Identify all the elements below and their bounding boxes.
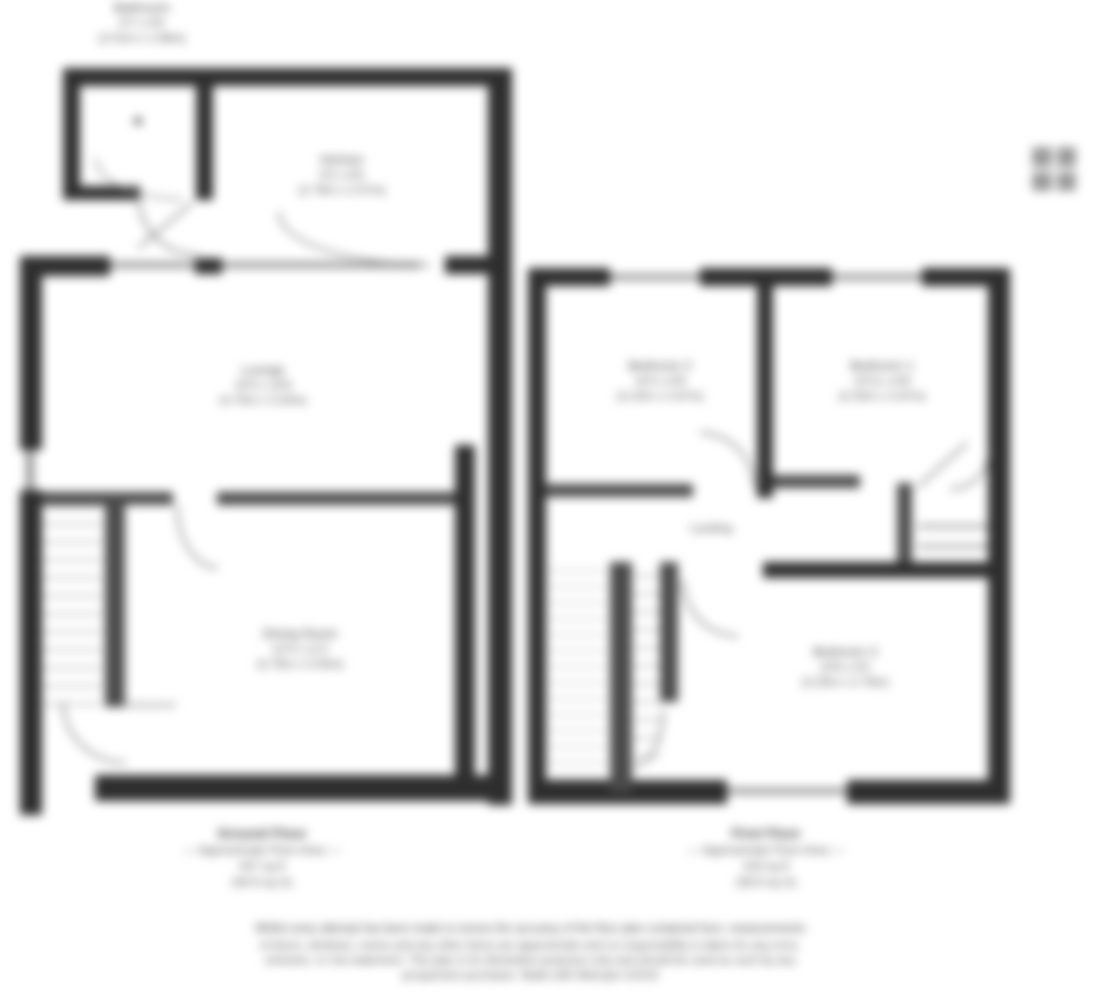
wall [546,484,693,497]
room-dims: 10'2 x 8'9 [616,374,703,389]
wall [217,492,455,505]
floor-area-line: — Approximate Floor Area — [184,842,340,858]
cupboard-wall [897,483,912,568]
disclaimer-line: prospective purchaser. Made with Metropi… [402,969,658,984]
room-label-kitchen: Kitchen 9'2 x 8'5 (2.79m x 2.57m) [298,152,385,198]
stair-wall [105,500,125,707]
room-dims: (3.20m x 2.79m) [801,675,888,690]
door-arc [950,452,990,490]
room-name: Lounge [219,362,306,378]
first-floor-caption: First Floor — Approximate Floor Area — 4… [688,824,844,890]
staircase [548,570,606,780]
cupboard-shelf [918,545,988,548]
door-leaf [118,704,176,706]
wall [528,268,546,804]
window [610,274,700,280]
door-arc [278,212,430,266]
door-arc [62,702,126,764]
chimney-wall [455,445,475,780]
room-dims: 6'7 x 5'6 [98,16,185,31]
floor-area-line: (40.6 sq m) [184,874,340,890]
room-dims: (3.33m x 2.67m) [838,389,925,404]
stair-wall [610,562,632,792]
wall [196,82,213,200]
room-dims: (3.76m x 3.40m) [256,657,343,672]
room-label-dining-room: Dining Room 12'4 x 11'2 (3.76m x 3.40m) [256,626,343,672]
room-label-landing: Landing [690,521,733,536]
wall [773,475,860,488]
floor-plan-page: Bathroom 6'7 x 5'6 (2.01m x 1.68m) Kitch… [0,0,1120,1008]
wall [95,775,490,801]
room-dims: 10'11 x 8'9 [838,374,925,389]
floor-area-line: 437 sq ft [184,858,340,874]
floor-title: First Floor [688,824,844,842]
room-name: Bedroom 1 [838,358,925,374]
staircase [44,505,102,705]
logo-tile [1032,147,1052,167]
wall [20,490,42,815]
floor-area-line: 419 sq ft [688,858,844,874]
room-label-bedroom-3: Bedroom 3 10'6 x 9'2 (3.20m x 2.79m) [801,644,888,690]
logo-tile [1057,172,1077,192]
disclaimer-line: of doors, windows, rooms and any other i… [260,939,800,954]
wall [763,562,1010,578]
disclaimer-line: omission, or mis-statement. This plan is… [265,954,796,969]
metropix-logo-icon [1032,147,1076,191]
room-dims: 9'2 x 8'5 [298,168,385,183]
floor-area-line: (38.9 sq m) [688,874,844,890]
room-label-bedroom-2: Bedroom 2 10'2 x 8'9 (3.10m x 2.67m) [616,358,703,404]
wall [757,268,773,498]
room-name: Dining Room [256,626,343,642]
logo-tile [1057,147,1077,167]
window [110,262,195,268]
room-name: Landing [690,521,733,536]
wall [847,780,1010,804]
disclaimer-line: Whilst every attempt has been made to en… [255,922,805,937]
ground-floor-caption: Ground Floor — Approximate Floor Area — … [184,824,340,890]
cupboard-shelf [918,525,988,528]
wall [988,268,1010,804]
door-arc [682,580,738,637]
window [832,274,922,280]
logo-tile [1032,172,1052,192]
room-dims: (2.79m x 2.57m) [298,183,385,198]
wall [63,68,80,200]
room-dims: (4.70m x 3.20m) [219,393,306,408]
window [727,788,847,794]
floor-plan-artwork: Bathroom 6'7 x 5'6 (2.01m x 1.68m) Kitch… [0,0,1120,1008]
room-name: Bathroom [98,0,185,16]
room-name: Bedroom 3 [801,644,888,660]
room-dims: 15'5 x 10'6 [219,378,306,393]
room-label-bathroom: Bathroom 6'7 x 5'6 (2.01m x 1.68m) [98,0,185,46]
room-name: Bedroom 2 [616,358,703,374]
stair-wall [660,562,678,702]
room-label-lounge: Lounge 15'5 x 10'6 (4.70m x 3.20m) [219,362,306,408]
door-arc [700,432,755,487]
wall [20,256,42,450]
wall [63,68,512,86]
floor-area-line: — Approximate Floor Area — [688,842,844,858]
window [26,450,34,490]
floor-title: Ground Floor [184,824,340,842]
room-dims: (2.01m x 1.68m) [98,31,185,46]
room-name: Kitchen [298,152,385,168]
wall [488,68,512,805]
room-dims: 12'4 x 11'2 [256,642,343,657]
room-dims: (3.10m x 2.67m) [616,389,703,404]
room-dims: 10'6 x 9'2 [801,660,888,675]
room-label-bedroom-1: Bedroom 1 10'11 x 8'9 (3.33m x 2.67m) [838,358,925,404]
door-arc [176,505,218,569]
shower-head-symbol [134,117,142,125]
wall [195,258,222,274]
